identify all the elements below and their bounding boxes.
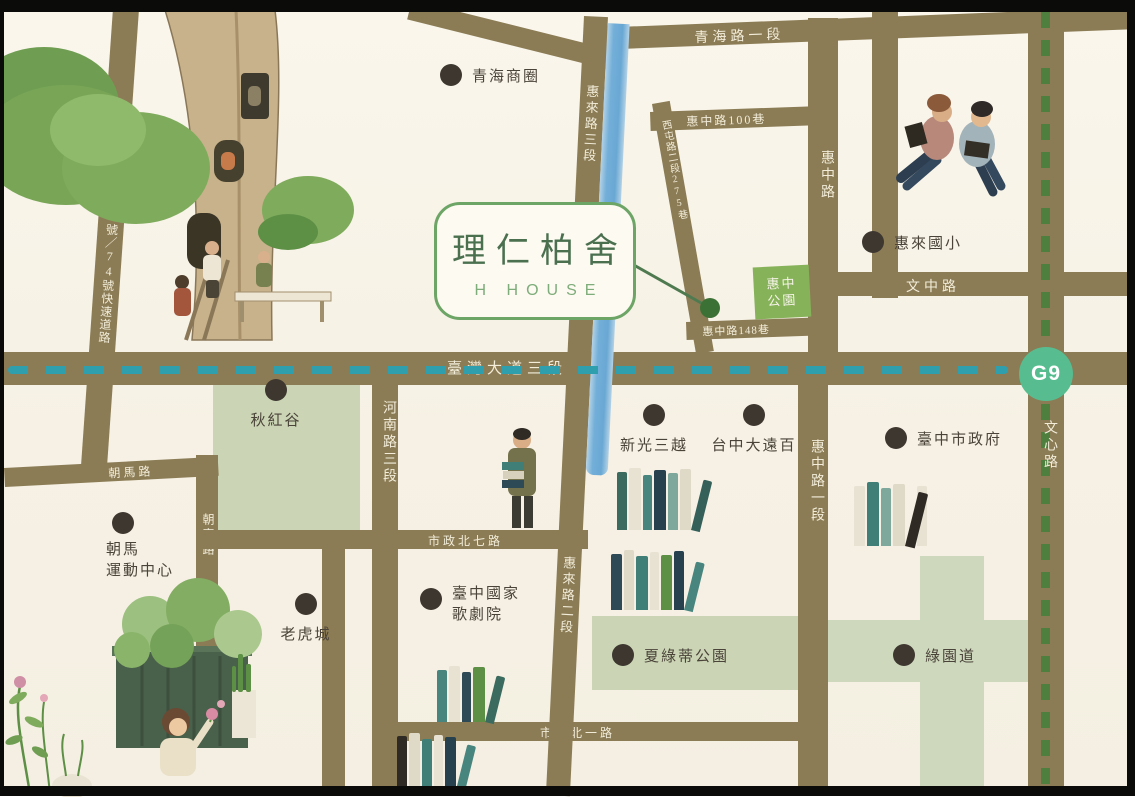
poi-label: 台中大遠百 <box>711 434 796 455</box>
project-name-zh: 理仁柏舍 <box>447 223 633 272</box>
poi-label: 夏綠蒂公園 <box>644 645 729 666</box>
poi-opera-house: 臺中國家 歌劇院 <box>420 584 520 626</box>
road-label-chaoma: 朝馬路 <box>108 462 154 481</box>
poi-label-line2: 運動中心 <box>106 561 174 582</box>
book-carrier-illustration <box>496 426 548 532</box>
road-label-wenxin: 文心路 <box>1039 420 1059 471</box>
road-label-xitun-lane: 西屯路二段275巷 <box>657 119 689 222</box>
poi-dot <box>295 593 317 615</box>
project-callout-box: 理仁柏舍 H HOUSE <box>434 202 636 320</box>
poi-label-line2: 歌劇院 <box>452 605 520 626</box>
poi-label: 惠來國小 <box>894 232 962 253</box>
poi-dot <box>743 404 765 426</box>
road-label-lane148: 惠中路148巷 <box>702 321 770 339</box>
poi-dot <box>893 644 915 666</box>
poi-huilai-school: 惠來國小 <box>862 231 962 253</box>
reading-couple-illustration <box>893 86 1015 198</box>
road-wenxin: 文心路 <box>1028 12 1064 796</box>
mrt-station-g9: G9 <box>1019 347 1073 401</box>
poi-dot <box>612 644 634 666</box>
illustrated-location-map: 國道一號／74號快速道路 青海路一段 惠中路100巷 西屯路二段275巷 惠中路… <box>0 0 1135 796</box>
frame-top <box>0 0 1135 12</box>
road-chaoma: 朝馬路 <box>4 457 219 487</box>
huizhong-park-line2: 公園 <box>767 291 798 310</box>
poi-dot <box>862 231 884 253</box>
road-label-henan: 河南路三段 <box>378 400 398 485</box>
road-label-qinghai: 青海路一段 <box>694 24 785 47</box>
road-label-shizheng-n7: 市政北七路 <box>428 532 503 549</box>
tree-house-illustration <box>36 10 366 350</box>
brt-dashed-line <box>8 366 1008 374</box>
huizhong-park-box: 惠中 公園 <box>753 265 812 320</box>
poi-label: 臺中市政府 <box>917 428 1002 449</box>
road-label-huizhong: 惠中路 <box>816 150 836 201</box>
bookshelf-illustration <box>611 550 693 610</box>
road-shizheng-n7: 市政北七路 <box>196 530 588 549</box>
road-wenzhong: 文中路 <box>808 272 1135 296</box>
poi-dot <box>440 64 462 86</box>
frame-bottom <box>0 786 1135 796</box>
bookshelf-illustration <box>437 664 494 722</box>
poi-qiuhonggu: 秋紅谷 <box>238 379 314 430</box>
station-label: G9 <box>1031 362 1061 386</box>
poi-label: 老虎城 <box>280 623 331 644</box>
site-leader-line <box>630 256 725 322</box>
huizhong-park-line1: 惠中 <box>766 274 797 293</box>
road-label-wenzhong: 文中路 <box>906 276 960 296</box>
poi-shinkong-mitsukoshi: 新光三越 <box>618 404 690 455</box>
poi-label: 青海商圈 <box>472 65 540 86</box>
poi-dot <box>112 512 134 534</box>
poi-label: 新光三越 <box>620 434 688 455</box>
garden-corner-illustration <box>0 594 285 796</box>
poi-label-line1: 臺中國家 <box>452 584 520 605</box>
road-huizhong-lane100: 惠中路100巷 <box>650 106 819 131</box>
poi-greenway: 綠園道 <box>893 644 976 666</box>
bookshelf-illustration <box>854 480 927 546</box>
poi-label-line1: 朝馬 <box>106 540 174 561</box>
frame-left <box>0 0 4 796</box>
poi-label: 綠園道 <box>925 645 976 666</box>
poi-top-city: 台中大遠百 <box>708 404 800 455</box>
poi-label: 秋紅谷 <box>250 409 301 430</box>
road-huizhong-north: 惠中路 <box>808 18 838 354</box>
poi-dot <box>265 379 287 401</box>
poi-dot <box>643 404 665 426</box>
road-label-huilai-sec2: 惠來路二段 <box>556 555 579 636</box>
poi-chaoma-sports-center: 朝馬 運動中心 <box>106 512 174 582</box>
road-west-vertical <box>322 548 345 796</box>
frame-right <box>1127 0 1135 796</box>
poi-qinghai-district: 青海商圈 <box>440 64 540 86</box>
poi-charlotte-park: 夏綠蒂公園 <box>612 644 729 666</box>
poi-dot <box>885 427 907 449</box>
mrt-dashed-line <box>1041 12 1050 796</box>
site-location-dot <box>700 298 720 318</box>
bookshelf-illustration <box>397 732 465 790</box>
poi-city-hall: 臺中市政府 <box>885 427 1002 449</box>
road-label-huizhong-sec1: 惠中路一段 <box>806 439 826 524</box>
poi-dot <box>420 588 442 610</box>
road-label-lane100: 惠中路100巷 <box>686 110 767 130</box>
project-name-en: H HOUSE <box>445 282 633 300</box>
road-label-huilai-sec3: 惠來路三段 <box>579 84 602 165</box>
greenway-vertical-area <box>920 556 984 796</box>
bookshelf-illustration <box>617 466 700 530</box>
